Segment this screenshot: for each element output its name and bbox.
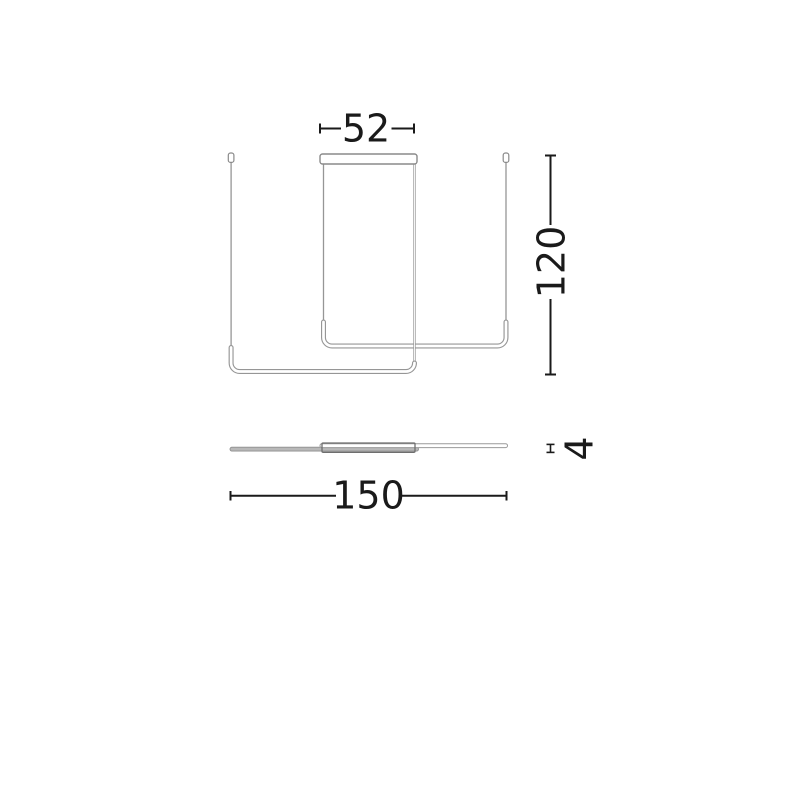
plan-view: 4 150: [230, 436, 602, 517]
drawing-canvas: 52: [0, 0, 800, 800]
dim52-label: 52: [342, 107, 390, 151]
cable-end-ferrule-left: [228, 153, 234, 162]
front-elevation-view: 52: [228, 107, 573, 375]
dimension-total-length: 150: [231, 474, 507, 518]
ceiling-canopy: [320, 154, 417, 164]
dimension-canopy-width: 52: [320, 107, 414, 151]
dimension-profile-thickness: 4: [547, 436, 602, 460]
cable-end-ferrule-right: [503, 153, 509, 162]
dim150-label: 150: [332, 474, 405, 518]
plan-upper-bar: [320, 444, 508, 448]
lower-light-bar: [231, 348, 414, 372]
pendant-lamp-dimension-drawing: 52: [0, 0, 800, 800]
dim4-label: 4: [558, 436, 602, 460]
dimension-drop-height: 120: [530, 156, 574, 375]
dim120-label: 120: [530, 226, 574, 299]
